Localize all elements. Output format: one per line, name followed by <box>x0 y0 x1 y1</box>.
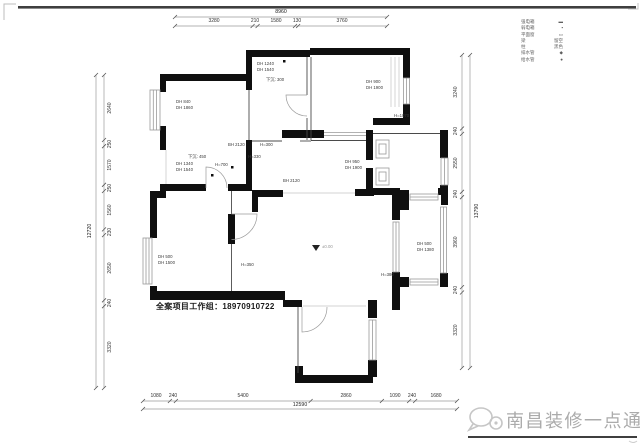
level-note: ±0.00 <box>322 244 333 250</box>
top-rule <box>18 6 636 9</box>
height-note: H=1070 <box>394 113 409 119</box>
dim-left-seg: 240 <box>107 299 113 307</box>
room-note: 下沉: 300 <box>266 77 284 83</box>
dim-top-seg: 1580 <box>270 18 281 24</box>
dim-left-seg: 230 <box>107 228 113 236</box>
watermark-logo-icon <box>469 408 502 430</box>
watermark-text: 南昌装修一点通 <box>506 407 640 433</box>
dim-top-total: 8960 <box>275 9 287 15</box>
dim-bottom-total: 12590 <box>293 402 307 408</box>
dim-right-seg: 240 <box>453 127 459 135</box>
room-note: DH 1240DH 1540 <box>257 61 274 72</box>
dim-left-seg: 3320 <box>107 341 113 352</box>
room-note: DH 840DH 1860 <box>176 99 193 110</box>
dim-left-seg: 250 <box>107 140 113 148</box>
room-note: DH 500DH 1380 <box>417 241 434 252</box>
dim-right-seg: 3320 <box>453 324 459 335</box>
project-credit: 全案项目工作组：18970910722 <box>156 301 275 312</box>
dim-top-seg: 210 <box>251 18 259 24</box>
dim-bottom-seg: 240 <box>408 393 416 399</box>
legend-symbol: ● <box>560 57 563 63</box>
dim-right-seg: 240 <box>453 286 459 294</box>
height-note: H=330 <box>248 154 261 160</box>
legend: 强电箱▬ 弱电箱▪ 平面窗▭ 梁留空 柱黑色 排水管◆ 给水管● <box>521 19 563 63</box>
corner-mark-top-left <box>4 4 16 20</box>
dim-left-total: 12720 <box>87 224 93 238</box>
dim-right-total: 13790 <box>474 204 480 218</box>
room-note: DH 900DH 1900 <box>366 79 383 90</box>
dim-bottom-seg: 240 <box>169 393 177 399</box>
floorplan-page: 8960 3280 210 1580 130 3760 1080 240 540… <box>0 0 640 448</box>
corner-mark-bottom-right <box>629 441 637 443</box>
dim-bottom-seg: 1680 <box>430 393 441 399</box>
room-note: 下沉: 450 <box>188 154 206 160</box>
legend-item: 给水管● <box>521 57 563 63</box>
dim-left-seg: 1570 <box>107 159 113 170</box>
dim-bottom-seg: 2860 <box>340 393 351 399</box>
dim-right-seg: 2550 <box>453 157 459 168</box>
dim-left-seg: 2640 <box>107 102 113 113</box>
height-note: H=380 <box>381 272 394 278</box>
dim-right-seg: 240 <box>453 190 459 198</box>
beam-note: BH 2120 <box>228 142 245 148</box>
dim-right-seg: 3240 <box>453 86 459 97</box>
room-note: DH 500DH 1500 <box>158 254 175 265</box>
dim-left-seg: 1560 <box>107 204 113 215</box>
room-note: DH 950DH 1900 <box>345 159 362 170</box>
dim-left-seg: 2650 <box>107 262 113 273</box>
bottom-rule <box>468 436 637 438</box>
dim-bottom-seg: 5400 <box>237 393 248 399</box>
dim-bottom-seg: 1080 <box>150 393 161 399</box>
floorplan-drawing <box>0 0 640 448</box>
dim-top-seg: 3760 <box>336 18 347 24</box>
dim-top-seg: 3280 <box>208 18 219 24</box>
beam-note: BH 2120 <box>283 178 300 184</box>
dim-top-seg: 130 <box>293 18 301 24</box>
height-note: H=350 <box>241 262 254 268</box>
dim-left-seg: 250 <box>107 184 113 192</box>
height-note: H=700 <box>215 162 228 168</box>
room-note: DH 1340DH 1540 <box>176 161 193 172</box>
height-note: H=300 <box>260 142 273 148</box>
dim-right-seg: 3960 <box>453 236 459 247</box>
dim-bottom-seg: 1090 <box>389 393 400 399</box>
level-marker-icon <box>312 245 320 251</box>
